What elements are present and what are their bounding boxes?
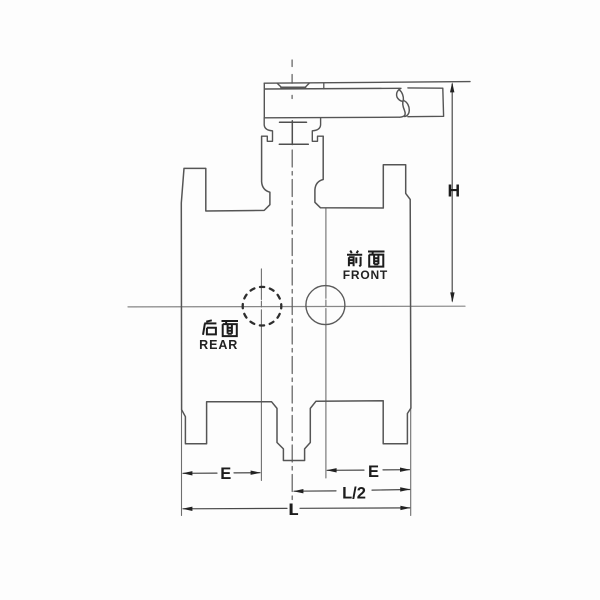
svg-text:L/2: L/2 <box>342 484 366 502</box>
svg-text:REAR: REAR <box>199 338 238 352</box>
svg-text:FRONT: FRONT <box>343 268 388 282</box>
svg-text:E: E <box>220 465 231 483</box>
svg-text:H: H <box>447 180 460 200</box>
svg-text:E: E <box>368 463 379 481</box>
svg-text:L: L <box>288 501 298 519</box>
